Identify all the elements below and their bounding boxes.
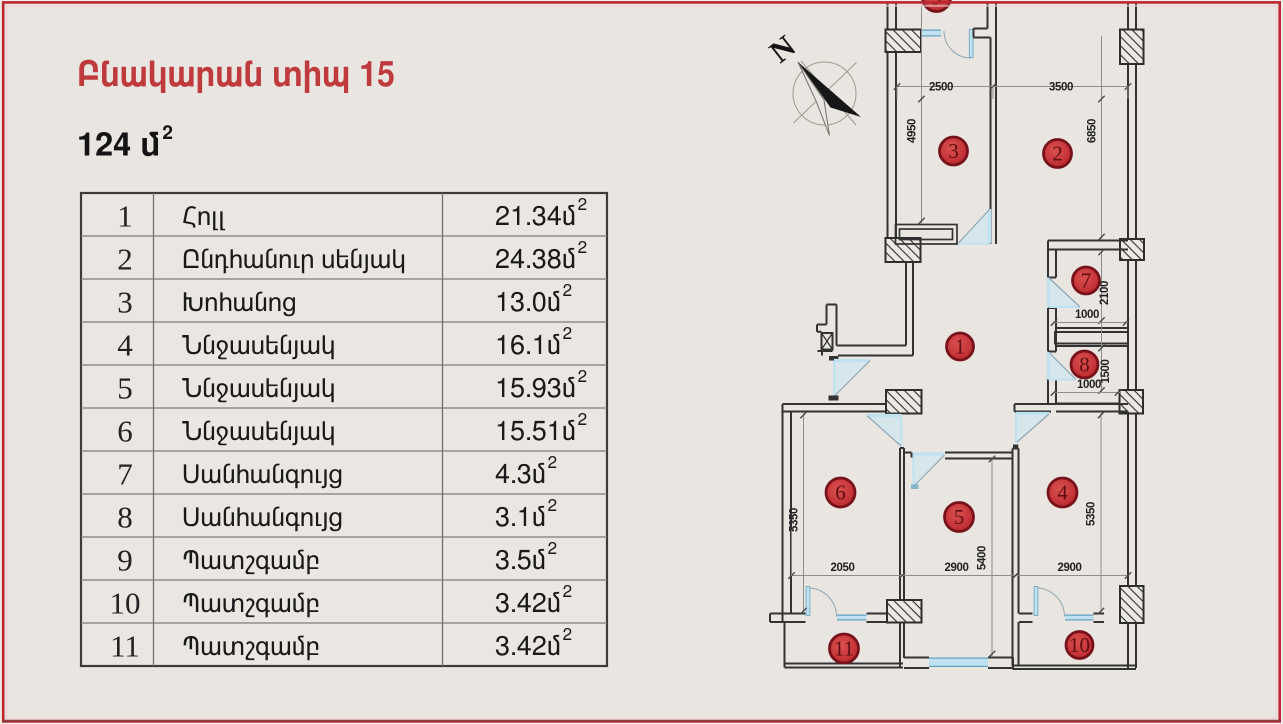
svg-text:11: 11 [110, 629, 140, 664]
svg-text:2500: 2500 [929, 82, 953, 94]
svg-text:5: 5 [954, 505, 965, 529]
svg-text:5350: 5350 [789, 508, 801, 532]
svg-text:5350: 5350 [1086, 502, 1098, 526]
svg-text:6850: 6850 [1087, 119, 1099, 143]
svg-text:8: 8 [117, 500, 133, 535]
svg-text:2: 2 [117, 242, 133, 277]
svg-text:6: 6 [117, 414, 133, 449]
svg-text:6: 6 [835, 481, 846, 505]
svg-text:2900: 2900 [945, 562, 969, 574]
svg-text:5400: 5400 [977, 546, 989, 570]
svg-text:9: 9 [117, 543, 133, 578]
svg-text:1: 1 [117, 199, 133, 234]
svg-text:1000: 1000 [1075, 309, 1099, 321]
svg-text:3: 3 [948, 139, 959, 163]
svg-text:7: 7 [1081, 269, 1092, 293]
svg-text:2900: 2900 [1058, 562, 1082, 574]
svg-text:10: 10 [1069, 633, 1090, 657]
svg-text:4950: 4950 [907, 119, 919, 143]
svg-text:1500: 1500 [1100, 360, 1112, 384]
svg-text:3: 3 [117, 285, 133, 320]
svg-text:5: 5 [117, 371, 133, 406]
svg-text:2: 2 [1052, 142, 1063, 166]
svg-text:7: 7 [117, 457, 133, 492]
svg-text:4: 4 [117, 328, 133, 363]
svg-text:2100: 2100 [1099, 281, 1111, 305]
svg-text:2050: 2050 [831, 562, 855, 574]
svg-text:4: 4 [1057, 481, 1068, 505]
svg-text:11: 11 [834, 637, 854, 661]
svg-text:8: 8 [1079, 353, 1090, 377]
svg-text:1000: 1000 [1077, 379, 1101, 391]
svg-text:3500: 3500 [1049, 82, 1073, 94]
svg-text:1: 1 [955, 335, 966, 359]
svg-text:10: 10 [110, 586, 141, 621]
